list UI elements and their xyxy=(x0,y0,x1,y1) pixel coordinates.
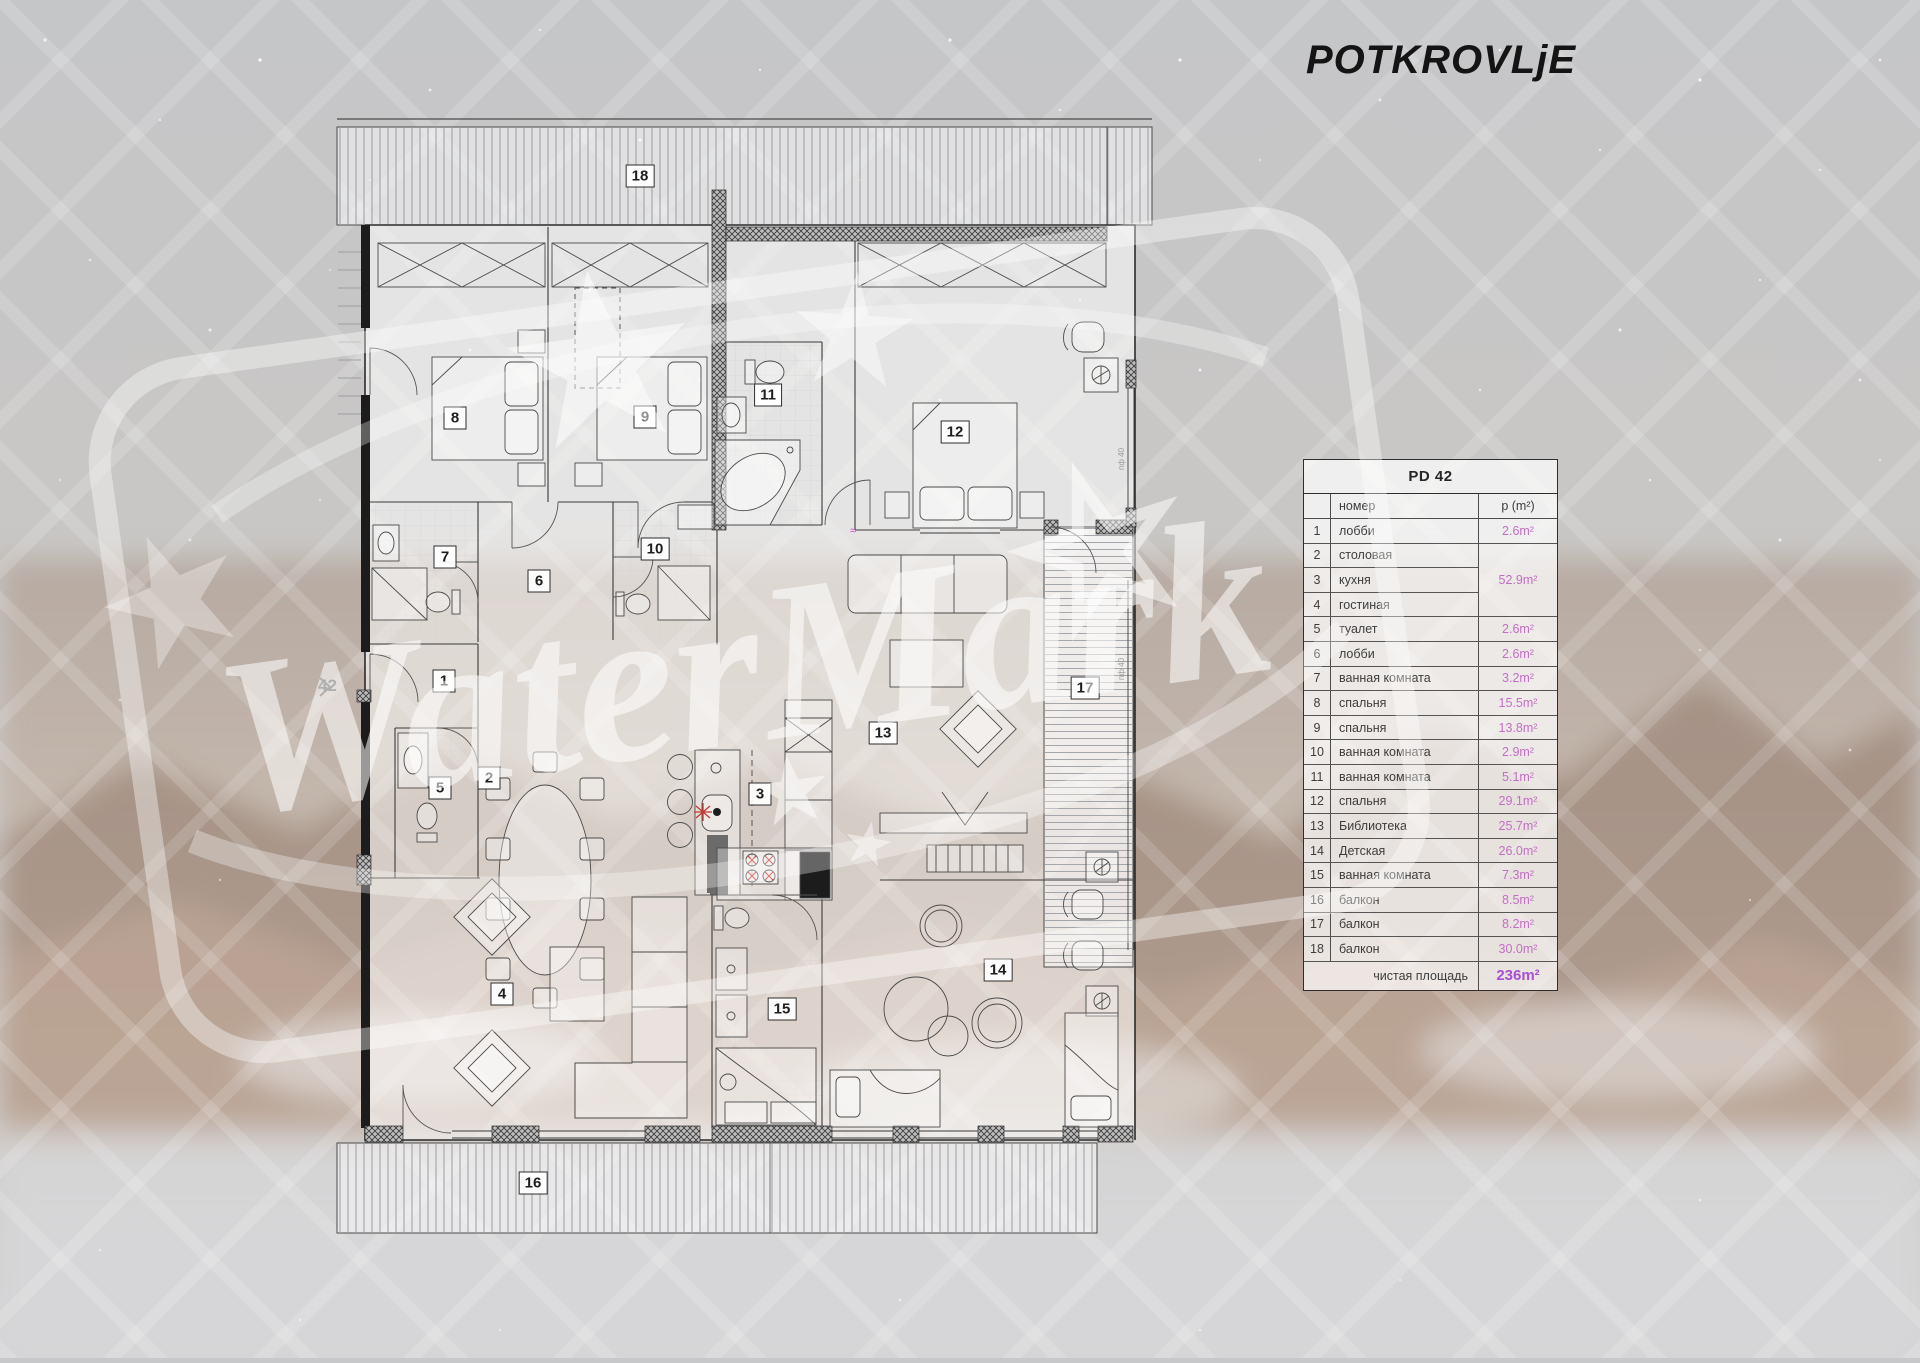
row-number: 13 xyxy=(1304,814,1331,839)
row-number: 1 xyxy=(1304,519,1331,544)
room-label-12: 12 xyxy=(941,421,970,444)
table-row: 9спальня13.8m² xyxy=(1304,716,1557,741)
room-area: 30.0m² xyxy=(1479,937,1557,962)
row-number: 4 xyxy=(1304,593,1331,618)
room-name: лобби xyxy=(1331,642,1479,667)
footer-label: чистая площадь xyxy=(1304,962,1479,990)
room-area: 26.0m² xyxy=(1479,839,1557,864)
table-row: 8спальня15.5m² xyxy=(1304,691,1557,716)
room-name: Детская xyxy=(1331,839,1479,864)
row-number: 2 xyxy=(1304,544,1331,569)
row-number: 15 xyxy=(1304,863,1331,888)
room-area: 3.2m² xyxy=(1479,667,1557,692)
room-name: столовая xyxy=(1331,544,1479,569)
room-label-15: 15 xyxy=(768,998,797,1021)
room-area: 2.6m² xyxy=(1479,617,1557,642)
room-name: спальня xyxy=(1331,790,1479,815)
room-label-10: 10 xyxy=(641,538,670,561)
table-row: 15ванная комната7.3m² xyxy=(1304,863,1557,888)
table-row: 7ванная комната3.2m² xyxy=(1304,667,1557,692)
room-area: 2.6m² xyxy=(1479,519,1557,544)
room-area xyxy=(1479,593,1557,618)
row-number: 11 xyxy=(1304,765,1331,790)
room-name: балкон xyxy=(1331,888,1479,913)
row-number: 18 xyxy=(1304,937,1331,962)
room-name: ванная комната xyxy=(1331,765,1479,790)
room-label-3: 3 xyxy=(749,783,772,806)
room-area: 25.7m² xyxy=(1479,814,1557,839)
area-table: PD 42 номер p (m²) 1лобби2.6m²2столовая3… xyxy=(1303,459,1558,991)
room-area xyxy=(1479,544,1557,569)
table-row: 2столовая xyxy=(1304,544,1557,569)
room-area: 13.8m² xyxy=(1479,716,1557,741)
room-name: лобби xyxy=(1331,519,1479,544)
room-name: кухня xyxy=(1331,568,1479,593)
row-number: 7 xyxy=(1304,667,1331,692)
plan-labels: 123456789101112131415161718 xyxy=(330,100,1170,1250)
room-area: 15.5m² xyxy=(1479,691,1557,716)
table-row: 12спальня29.1m² xyxy=(1304,790,1557,815)
room-label-11: 11 xyxy=(754,384,782,407)
room-label-9: 9 xyxy=(634,406,657,429)
row-number: 17 xyxy=(1304,913,1331,938)
table-row: 4гостиная xyxy=(1304,593,1557,618)
header-num-cell xyxy=(1304,494,1331,519)
row-number: 10 xyxy=(1304,740,1331,765)
room-name: туалет xyxy=(1331,617,1479,642)
header-name-cell: номер xyxy=(1331,494,1479,519)
table-row: 10ванная комната2.9m² xyxy=(1304,740,1557,765)
room-label-17: 17 xyxy=(1071,677,1100,700)
room-area: 2.6m² xyxy=(1479,642,1557,667)
room-name: ванная комната xyxy=(1331,863,1479,888)
table-row: 14Детская26.0m² xyxy=(1304,839,1557,864)
row-number: 16 xyxy=(1304,888,1331,913)
row-number: 5 xyxy=(1304,617,1331,642)
room-label-8: 8 xyxy=(444,407,467,430)
room-name: ванная комната xyxy=(1331,740,1479,765)
room-label-13: 13 xyxy=(869,722,898,745)
area-table-footer: чистая площадь 236m² xyxy=(1304,962,1557,990)
entrance-marker: 42 xyxy=(318,676,337,696)
page-title: POTKROVLjE xyxy=(1306,38,1576,83)
table-row: 17балкон8.2m² xyxy=(1304,913,1557,938)
table-row: 18балкон30.0m² xyxy=(1304,937,1557,962)
room-name: гостиная xyxy=(1331,593,1479,618)
room-name: Библиотека xyxy=(1331,814,1479,839)
row-number: 9 xyxy=(1304,716,1331,741)
row-number: 14 xyxy=(1304,839,1331,864)
room-label-1: 1 xyxy=(433,670,456,693)
table-row: 3кухня52.9m² xyxy=(1304,568,1557,593)
room-name: ванная комната xyxy=(1331,667,1479,692)
area-table-header: номер p (m²) xyxy=(1304,494,1557,519)
row-number: 12 xyxy=(1304,790,1331,815)
area-table-rows: 1лобби2.6m²2столовая3кухня52.9m²4гостина… xyxy=(1304,519,1557,962)
table-row: 6лобби2.6m² xyxy=(1304,642,1557,667)
header-area-cell: p (m²) xyxy=(1479,494,1557,519)
room-label-4: 4 xyxy=(491,983,514,1006)
footer-total-value: 236m² xyxy=(1479,962,1557,990)
room-area: 29.1m² xyxy=(1479,790,1557,815)
room-label-6: 6 xyxy=(528,570,551,593)
room-label-16: 16 xyxy=(519,1172,548,1195)
area-table-title: PD 42 xyxy=(1304,460,1557,494)
table-row: 5туалет2.6m² xyxy=(1304,617,1557,642)
row-number: 6 xyxy=(1304,642,1331,667)
table-row: 13Библиотека25.7m² xyxy=(1304,814,1557,839)
room-name: балкон xyxy=(1331,937,1479,962)
room-area: 8.2m² xyxy=(1479,913,1557,938)
table-row: 1лобби2.6m² xyxy=(1304,519,1557,544)
room-name: спальня xyxy=(1331,716,1479,741)
room-area: 52.9m² xyxy=(1479,568,1557,593)
room-area: 5.1m² xyxy=(1479,765,1557,790)
floor-plan: пф 40 пф 40 ≈ 12345678910111213141516171… xyxy=(330,100,1170,1250)
table-row: 16балкон8.5m² xyxy=(1304,888,1557,913)
room-name: балкон xyxy=(1331,913,1479,938)
room-area: 7.3m² xyxy=(1479,863,1557,888)
room-name: спальня xyxy=(1331,691,1479,716)
room-area: 2.9m² xyxy=(1479,740,1557,765)
row-number: 8 xyxy=(1304,691,1331,716)
room-area: 8.5m² xyxy=(1479,888,1557,913)
row-number: 3 xyxy=(1304,568,1331,593)
room-label-2: 2 xyxy=(478,767,501,790)
table-row: 11ванная комната5.1m² xyxy=(1304,765,1557,790)
room-label-14: 14 xyxy=(984,959,1013,982)
page: { "page": { "title": "POTKROVLjE" }, "wa… xyxy=(0,0,1920,1358)
entrance-chevron-icon xyxy=(318,676,332,698)
room-label-5: 5 xyxy=(429,777,452,800)
room-label-18: 18 xyxy=(626,165,655,188)
room-label-7: 7 xyxy=(434,546,457,569)
